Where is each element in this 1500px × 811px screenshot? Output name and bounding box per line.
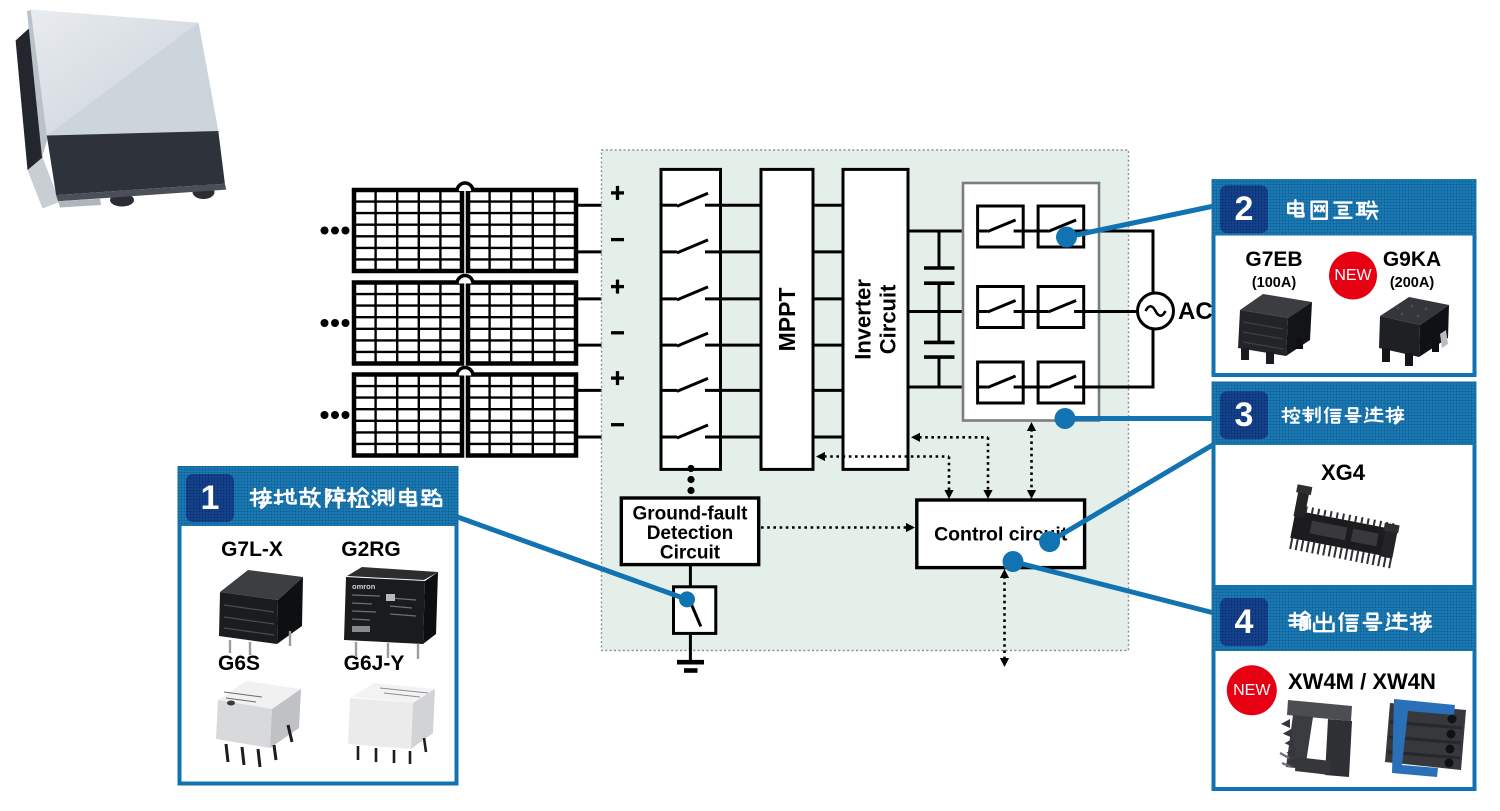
svg-text:G7L-X: G7L-X — [221, 538, 283, 561]
svg-text:G6S: G6S — [218, 652, 260, 675]
svg-text:NEW: NEW — [1334, 267, 1372, 284]
svg-text:XG4: XG4 — [1321, 460, 1366, 485]
svg-text:1: 1 — [201, 479, 220, 517]
svg-text:2: 2 — [1235, 190, 1254, 228]
svg-text:4: 4 — [1235, 603, 1254, 641]
svg-text:Inverter: Inverter — [851, 279, 876, 360]
svg-text:XW4M / XW4N: XW4M / XW4N — [1288, 669, 1436, 694]
svg-text:(100A): (100A) — [1252, 275, 1296, 291]
svg-text:3: 3 — [1235, 396, 1254, 434]
svg-text:G7EB: G7EB — [1245, 248, 1302, 271]
svg-text:Detection: Detection — [647, 523, 734, 544]
svg-text:NEW: NEW — [1233, 682, 1271, 699]
svg-text:G9KA: G9KA — [1383, 248, 1441, 271]
svg-text:Circuit: Circuit — [660, 543, 721, 564]
svg-text:Circuit: Circuit — [876, 284, 901, 354]
svg-text:omron: omron — [352, 582, 376, 591]
svg-text:G6J-Y: G6J-Y — [344, 652, 405, 675]
svg-text:MPPT: MPPT — [774, 287, 800, 351]
svg-text:Ground-fault: Ground-fault — [632, 504, 748, 525]
svg-text:AC: AC — [1178, 298, 1213, 325]
svg-text:(200A): (200A) — [1390, 275, 1434, 291]
svg-text:G2RG: G2RG — [341, 538, 401, 561]
